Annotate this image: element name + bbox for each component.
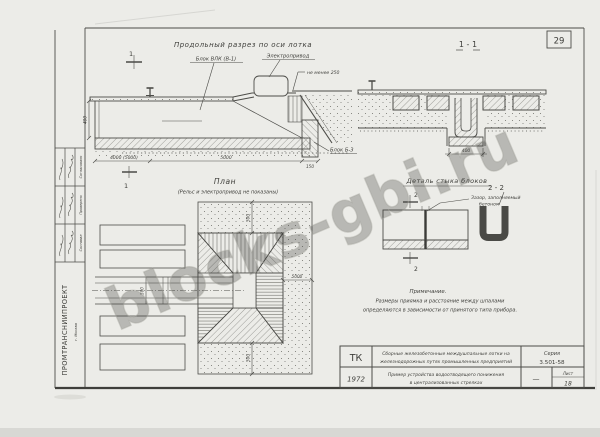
plan-title: План	[214, 177, 236, 186]
title-block-title1: Сборные железобетонные междушпальные лот…	[382, 351, 510, 357]
longitudinal-section: Продольный разрез по оси лотка 1	[83, 41, 358, 169]
dim-span1: 4000 (5000)	[110, 155, 138, 161]
drawing-sheet: 29 Согласовано Проверено Составил ПРОМТР…	[0, 0, 600, 437]
stamp-role-2: Проверено	[79, 195, 83, 214]
plan-subtitle: (Рельс и электропривод не показаны)	[178, 190, 279, 196]
note-block: Примечание. Размеры приямка и расстояние…	[363, 289, 517, 314]
label-drive: Электропривод	[266, 54, 310, 60]
title-block: ТК 1972 Сборные железобетонные междушпал…	[340, 346, 584, 388]
title-block-sheet: 18	[564, 381, 572, 388]
longitudinal-title: Продольный разрез по оси лотка	[174, 41, 312, 49]
stamp-signatures	[60, 155, 74, 256]
page-number-box: 29	[547, 31, 571, 48]
channel-cross-section	[483, 206, 505, 238]
stamp-role-3: Составил	[79, 234, 83, 252]
dim-span3: 150	[306, 164, 314, 169]
title-block-series-label: Серия	[544, 351, 560, 357]
plan-dim-right: 5000	[292, 274, 303, 279]
plan-marker: 1	[124, 182, 128, 190]
org-name: ПРОМТРАНСНИИПРОЕКТ	[61, 284, 69, 375]
drawing-canvas: 29 Согласовано Проверено Составил ПРОМТР…	[0, 0, 600, 437]
label-block-b3: Блок Б-3	[330, 148, 354, 154]
note-heading: Примечание.	[410, 289, 447, 295]
title-block-year: 1972	[347, 376, 365, 384]
stamp-column: Согласовано Проверено Составил ПРОМТРАНС…	[55, 148, 85, 375]
detail-marker-bottom: 2	[414, 266, 418, 273]
section-marker-1-top: 1	[126, 50, 142, 69]
label-block-vlk: Блок ВЛК (В-1)	[196, 57, 236, 63]
section-marker-1-label: 1	[129, 50, 133, 58]
title-block-dash: —	[533, 375, 540, 383]
note-line2: определяются в зависимости от принятого …	[363, 308, 517, 314]
title-block-title2: железнодорожных путях промышленных предп…	[379, 359, 512, 365]
section-1-1-title: 1 - 1	[459, 40, 477, 49]
dim-span2: 5000	[220, 155, 232, 161]
title-block-sheet-label: Лист	[562, 371, 574, 376]
title-block-series: 3.501-58	[539, 360, 565, 366]
plan-dim-bottom: 500	[246, 354, 251, 362]
note-line1: Размеры приямка и расстояние между шпала…	[376, 299, 505, 305]
stamp-role-1: Согласовано	[79, 156, 83, 179]
label-min-depth: не менее 250	[307, 70, 340, 76]
page-number: 29	[554, 37, 565, 47]
dim-left-height: 400	[83, 116, 88, 124]
title-block-subtitle2: в централизованных стрелках	[410, 381, 483, 386]
org-city: г. Москва	[74, 323, 78, 341]
title-block-subtitle1: Пример устройства водоотводящего понижен…	[388, 372, 505, 378]
title-block-code: ТК	[349, 353, 363, 364]
gap-label-line1: Зазор, заполняемый	[471, 195, 521, 201]
